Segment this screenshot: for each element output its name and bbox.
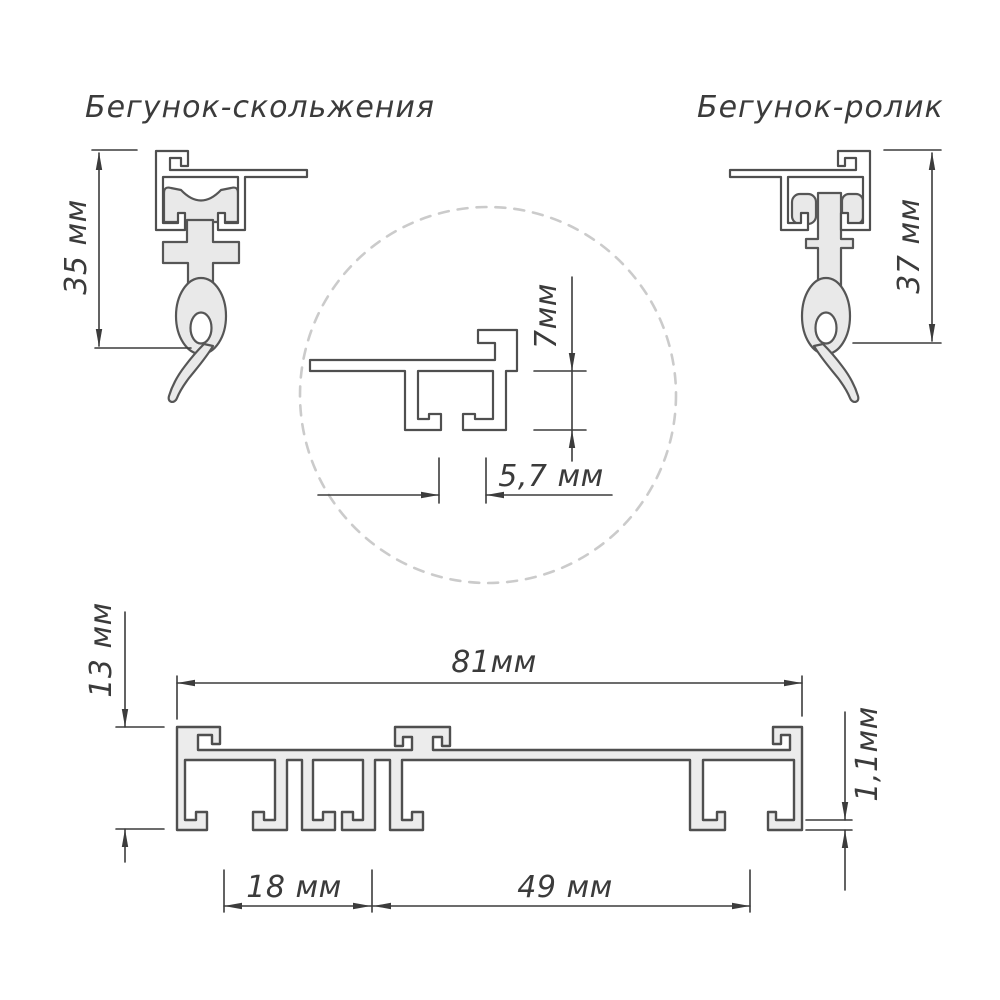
profile-cross-section: 81мм 13 мм 18 мм 49 мм 1,1мм xyxy=(84,602,885,912)
arrowhead-right xyxy=(732,903,750,909)
arrowhead-down xyxy=(122,709,128,727)
slider-runner-drawing: 35 мм xyxy=(59,150,307,402)
roller-hook-eye-hole xyxy=(816,313,837,344)
slider-hook-eye-hole xyxy=(191,313,212,344)
detail-circle xyxy=(300,207,676,583)
diagram-canvas: Бегунок-скольжения Бегунок-ролик 35 мм xyxy=(0,0,1000,1000)
arrowhead-up xyxy=(96,152,102,170)
dimension-label-profile-height: 13 мм xyxy=(84,602,119,697)
detail-view: 7мм 5,7 мм xyxy=(300,207,676,583)
rail-profile-section xyxy=(177,727,802,830)
dimension-label-groove-depth: 7мм xyxy=(529,283,564,349)
dimension-label-profile-width: 81мм xyxy=(451,645,536,680)
arrowhead-up xyxy=(929,152,935,170)
dimension-label-slider-height: 35 мм xyxy=(59,199,94,294)
arrowhead-down xyxy=(929,324,935,342)
arrowhead-down xyxy=(842,802,848,820)
roller-hook-tail xyxy=(814,344,858,402)
arrowhead-down xyxy=(96,329,102,347)
arrowhead-up xyxy=(122,829,128,847)
arrowhead-down xyxy=(569,353,575,371)
dimension-label-roller-height: 37 мм xyxy=(892,198,927,293)
title-slider-runner: Бегунок-скольжения xyxy=(85,90,435,125)
arrowhead-left xyxy=(373,903,391,909)
arrowhead-up xyxy=(569,430,575,448)
dimension-label-groove-slot-width: 5,7 мм xyxy=(498,459,604,494)
arrowhead-up xyxy=(842,830,848,848)
dimension-label-wide-channel: 49 мм xyxy=(517,870,612,905)
arrowhead-left xyxy=(224,903,242,909)
arrowhead-right xyxy=(784,680,802,686)
curtain-rail-diagram: Бегунок-скольжения Бегунок-ролик 35 мм xyxy=(0,0,1000,1000)
arrowhead-left xyxy=(177,680,195,686)
arrowhead-right xyxy=(353,903,371,909)
arrowhead-right xyxy=(421,492,439,498)
roller-rail-profile xyxy=(730,151,870,230)
dimension-label-channel-spacing: 18 мм xyxy=(246,870,341,905)
slider-hook-tail xyxy=(169,344,213,402)
title-roller-runner: Бегунок-ролик xyxy=(697,90,944,125)
slider-glider-wings xyxy=(164,188,238,222)
dimension-label-wall-thickness: 1,1мм xyxy=(850,706,885,801)
detail-rail-lip-profile xyxy=(310,330,517,430)
roller-runner-drawing: 37 мм xyxy=(730,150,941,402)
